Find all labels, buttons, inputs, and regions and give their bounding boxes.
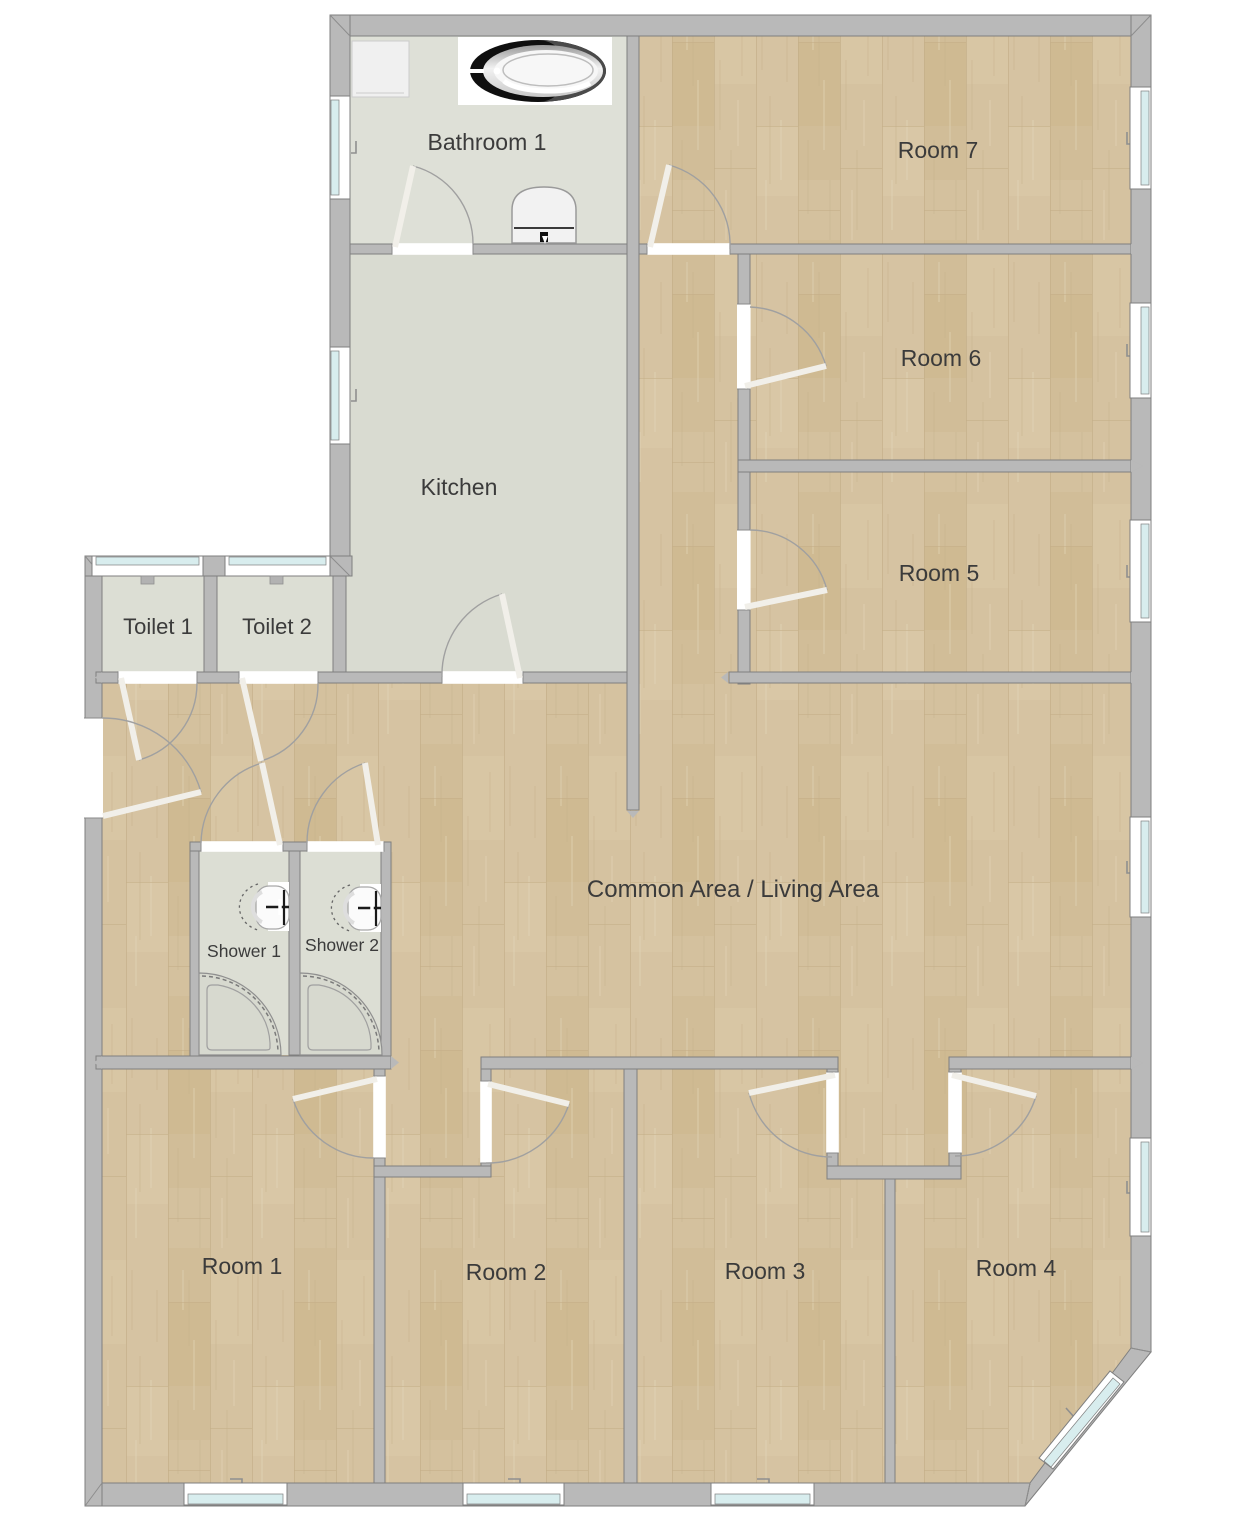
svg-text:Toilet 2: Toilet 2 <box>242 614 312 639</box>
svg-text:Kitchen: Kitchen <box>421 474 498 500</box>
svg-text:Room 5: Room 5 <box>899 560 980 586</box>
svg-text:Room 2: Room 2 <box>466 1259 547 1285</box>
svg-text:Room 3: Room 3 <box>725 1258 806 1284</box>
svg-text:Shower 2: Shower 2 <box>305 935 379 955</box>
svg-text:Shower 1: Shower 1 <box>207 941 281 961</box>
svg-text:Toilet 1: Toilet 1 <box>123 614 193 639</box>
svg-text:Room 1: Room 1 <box>202 1253 283 1279</box>
svg-text:Room 7: Room 7 <box>898 137 979 163</box>
svg-text:Bathroom 1: Bathroom 1 <box>428 129 547 155</box>
svg-text:Common Area / Living Area: Common Area / Living Area <box>587 876 880 903</box>
svg-text:Room 6: Room 6 <box>901 345 982 371</box>
svg-text:Room 4: Room 4 <box>976 1255 1057 1281</box>
